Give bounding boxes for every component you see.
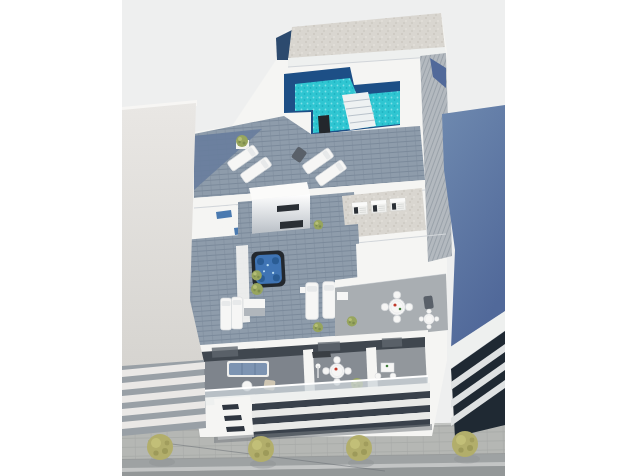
sun-lounger bbox=[323, 282, 336, 319]
table-setting-green bbox=[386, 365, 389, 368]
table-setting-red bbox=[334, 367, 337, 370]
table-setting-red bbox=[393, 303, 396, 306]
ac-unit bbox=[352, 202, 368, 215]
deck-bench-shadow bbox=[244, 308, 265, 316]
architectural-render-canvas bbox=[0, 0, 629, 476]
deck-bench bbox=[244, 299, 265, 308]
hot-tub bbox=[251, 250, 286, 288]
pier-slit-window bbox=[224, 415, 242, 421]
planter-shrub bbox=[236, 135, 248, 147]
ac-unit bbox=[390, 198, 406, 211]
console-dark bbox=[312, 351, 331, 358]
bistro-table bbox=[381, 363, 394, 372]
table-setting-green bbox=[399, 308, 402, 311]
potted-plant bbox=[314, 220, 324, 230]
sofa-blue bbox=[229, 363, 267, 375]
sliding-door bbox=[318, 341, 340, 351]
ac-unit bbox=[371, 200, 387, 213]
bistro-chair bbox=[375, 373, 381, 379]
render-scene bbox=[0, 0, 629, 476]
potted-plant bbox=[252, 270, 262, 280]
potted-plant bbox=[251, 283, 263, 295]
lounge-chair-dark bbox=[423, 295, 434, 309]
balcony-plant bbox=[313, 322, 323, 332]
balcony-plant bbox=[347, 316, 357, 326]
sliding-door bbox=[382, 337, 402, 347]
pier-slit-window bbox=[222, 404, 239, 410]
left-building-face bbox=[122, 103, 204, 368]
sun-lounger bbox=[306, 283, 319, 320]
pier-slit-window bbox=[226, 426, 245, 432]
sliding-door bbox=[212, 346, 238, 357]
terrace-table-white bbox=[337, 292, 348, 300]
sun-lounger bbox=[232, 297, 243, 329]
sun-lounger bbox=[221, 298, 232, 330]
